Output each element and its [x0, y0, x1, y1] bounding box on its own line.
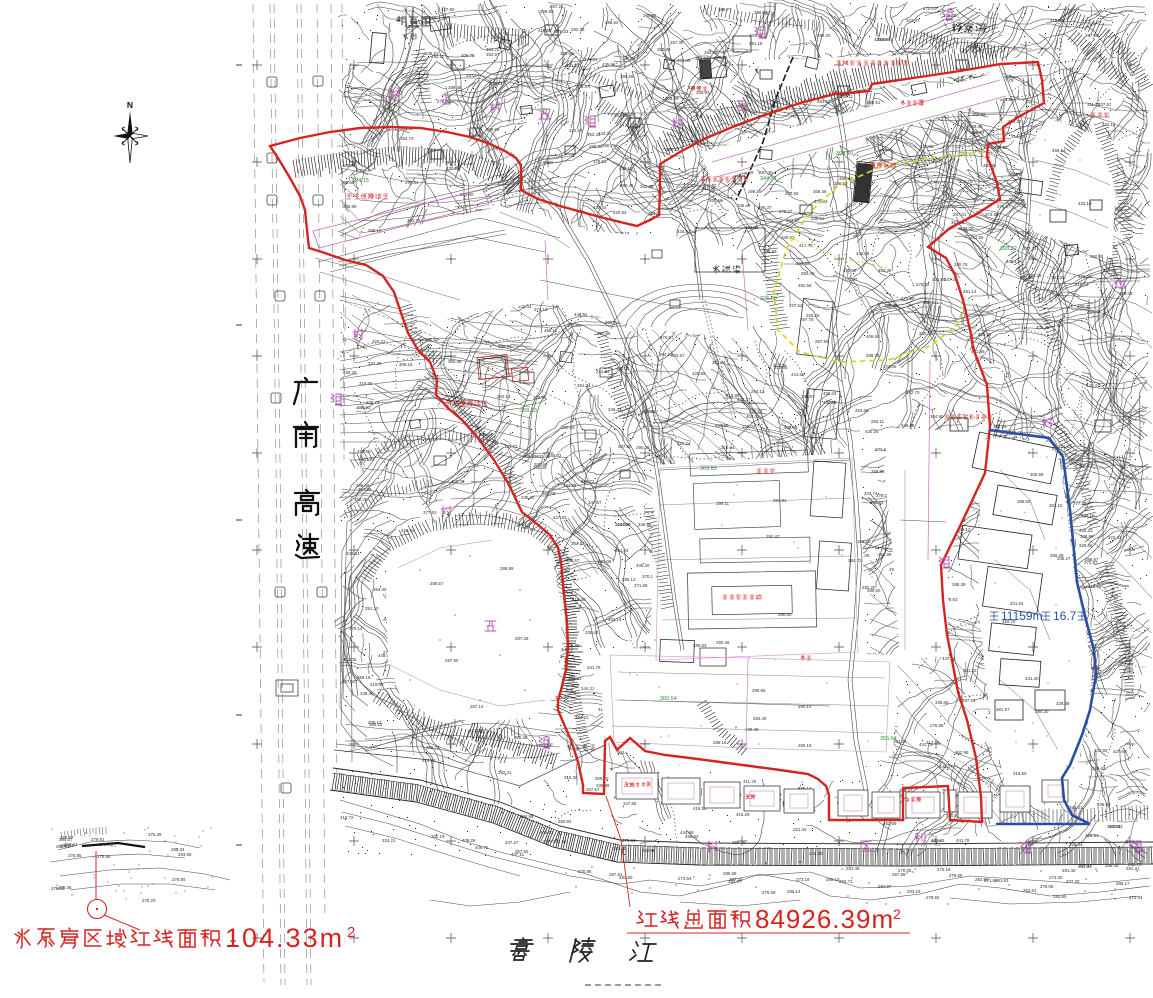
svg-text:329.03: 329.03 — [1119, 291, 1133, 296]
svg-text:283.85: 283.85 — [1053, 894, 1067, 899]
svg-text:316.60: 316.60 — [1013, 771, 1027, 776]
svg-text:335.56: 335.56 — [796, 261, 810, 266]
svg-text:278.26: 278.26 — [99, 842, 113, 847]
svg-text:408.82: 408.82 — [523, 454, 537, 459]
svg-text:341.30: 341.30 — [1025, 676, 1039, 681]
svg-text:427.90: 427.90 — [441, 7, 455, 12]
svg-text:441.76: 441.76 — [919, 742, 933, 747]
svg-text:380.29: 380.29 — [1028, 273, 1042, 278]
svg-text:323.37: 323.37 — [906, 18, 920, 23]
svg-text:379.91: 379.91 — [593, 159, 607, 164]
svg-text:322.41: 322.41 — [1108, 535, 1122, 540]
svg-text:273.00: 273.00 — [901, 296, 915, 301]
svg-text:286.50: 286.50 — [857, 539, 871, 544]
svg-text:288.89: 288.89 — [500, 566, 514, 571]
svg-text:347.67: 347.67 — [588, 500, 602, 505]
svg-text:349.51: 349.51 — [811, 216, 825, 221]
svg-text:373.92: 373.92 — [985, 212, 999, 217]
svg-text:432.11: 432.11 — [1102, 122, 1116, 127]
svg-text:391.40: 391.40 — [365, 606, 379, 611]
svg-text:351.04: 351.04 — [615, 548, 629, 553]
svg-text:276.28: 276.28 — [916, 282, 930, 287]
svg-text:419.90: 419.90 — [422, 758, 436, 763]
svg-text:374.47: 374.47 — [844, 277, 858, 282]
svg-text:447.52: 447.52 — [622, 56, 636, 61]
svg-text:352.89: 352.89 — [878, 552, 892, 557]
svg-text:363.36: 363.36 — [665, 96, 679, 101]
svg-text:427.83: 427.83 — [553, 515, 567, 520]
svg-text:384.19: 384.19 — [659, 352, 673, 357]
svg-text:459.11: 459.11 — [544, 328, 558, 333]
svg-text:287.70: 287.70 — [670, 40, 684, 45]
svg-text:335.42: 335.42 — [585, 630, 599, 635]
svg-text:441.62: 441.62 — [703, 183, 717, 188]
svg-text:309.16: 309.16 — [399, 362, 413, 367]
svg-text:309.20: 309.20 — [595, 776, 609, 781]
svg-text:277.17: 277.17 — [1079, 863, 1093, 868]
svg-text:297.01: 297.01 — [953, 212, 967, 217]
svg-text:274.54: 274.54 — [678, 876, 692, 881]
svg-text:344.21: 344.21 — [581, 686, 595, 691]
svg-text:411.78: 411.78 — [743, 779, 757, 784]
svg-text:344.61: 344.61 — [760, 176, 777, 182]
svg-text:2: 2 — [347, 924, 355, 941]
svg-text:279.92: 279.92 — [926, 895, 940, 900]
svg-text:304.57: 304.57 — [671, 353, 685, 358]
svg-text:362.83: 362.83 — [640, 184, 654, 189]
svg-text:369.63: 369.63 — [1092, 766, 1106, 771]
svg-text:441.78: 441.78 — [956, 838, 970, 843]
svg-text:270.18: 270.18 — [937, 867, 951, 872]
svg-text:391.24: 391.24 — [577, 383, 591, 388]
svg-text:379.14: 379.14 — [349, 626, 363, 631]
svg-text:403.16: 403.16 — [608, 617, 622, 622]
svg-text:398.92: 398.92 — [1000, 246, 1017, 252]
svg-text:373.01: 373.01 — [567, 323, 581, 328]
svg-text:379.61: 379.61 — [405, 180, 419, 185]
svg-text:360.76: 360.76 — [1008, 172, 1022, 177]
svg-text:276.69: 276.69 — [762, 890, 776, 895]
svg-text:308.93: 308.93 — [486, 127, 500, 132]
svg-text:298.65: 298.65 — [356, 483, 370, 488]
svg-text:362.93: 362.93 — [712, 360, 726, 365]
svg-text:310.55: 310.55 — [615, 522, 629, 527]
svg-text:290.14: 290.14 — [798, 704, 812, 709]
svg-text:401.80: 401.80 — [1094, 748, 1108, 753]
svg-text:280.83: 280.83 — [693, 643, 707, 648]
svg-text:282.55: 282.55 — [975, 877, 989, 882]
svg-text:305.89: 305.89 — [343, 204, 357, 209]
svg-text:283.08: 283.08 — [598, 559, 612, 564]
svg-text:455.28: 455.28 — [343, 370, 357, 375]
svg-text:287.80: 287.80 — [618, 444, 632, 449]
svg-text:299.11: 299.11 — [716, 501, 730, 506]
svg-text:272.86: 272.86 — [533, 395, 547, 400]
svg-text:310.66: 310.66 — [920, 144, 934, 149]
svg-text:310.94: 310.94 — [721, 445, 735, 450]
svg-text:282.61: 282.61 — [1023, 888, 1037, 893]
svg-text:282.71: 282.71 — [839, 879, 853, 884]
svg-text:399.16: 399.16 — [357, 675, 371, 680]
svg-text:345.27: 345.27 — [1057, 556, 1071, 561]
svg-text:446.72: 446.72 — [475, 845, 489, 850]
svg-text:286.10: 286.10 — [826, 877, 840, 882]
svg-text:453.78: 453.78 — [784, 425, 798, 430]
svg-text:290.46: 290.46 — [716, 640, 730, 645]
svg-text:277.30: 277.30 — [1066, 879, 1080, 884]
svg-text:287.40: 287.40 — [759, 170, 773, 175]
svg-text:432.00: 432.00 — [960, 226, 974, 231]
svg-text:278.06: 278.06 — [1040, 884, 1054, 889]
svg-text:289.20: 289.20 — [817, 33, 831, 38]
svg-text:295.12: 295.12 — [622, 577, 636, 582]
svg-text:339.68: 339.68 — [935, 700, 949, 705]
svg-text:422.44: 422.44 — [593, 205, 607, 210]
svg-text:381.54: 381.54 — [1051, 275, 1065, 280]
svg-text:288.57: 288.57 — [430, 581, 444, 586]
svg-text:346.66: 346.66 — [901, 423, 915, 428]
svg-text:359.88: 359.88 — [871, 469, 885, 474]
svg-text:277.46: 277.46 — [1073, 501, 1087, 506]
svg-text:305.24: 305.24 — [993, 424, 1007, 429]
svg-text:326.51: 326.51 — [1085, 833, 1099, 838]
svg-text:320.57: 320.57 — [569, 128, 583, 133]
svg-text:276.48: 276.48 — [1078, 274, 1092, 279]
svg-text:341.76: 341.76 — [563, 483, 577, 488]
svg-text:390.46: 390.46 — [620, 183, 634, 188]
svg-text:287.20: 287.20 — [729, 877, 743, 882]
svg-text:294.12: 294.12 — [751, 389, 765, 394]
svg-text:352.97: 352.97 — [486, 52, 500, 57]
svg-text:294.56: 294.56 — [798, 283, 812, 288]
svg-text:281.14: 281.14 — [963, 289, 977, 294]
svg-text:337.52: 337.52 — [789, 303, 803, 308]
svg-text:275.38: 275.38 — [148, 832, 162, 837]
svg-text:418.99: 418.99 — [1088, 584, 1102, 589]
svg-text:375.23: 375.23 — [555, 29, 569, 34]
svg-text:337.67: 337.67 — [1098, 102, 1112, 107]
svg-text:435.61: 435.61 — [425, 51, 439, 56]
svg-text:292.83: 292.83 — [558, 819, 572, 824]
svg-text:290.48: 290.48 — [745, 727, 759, 732]
svg-text:419.96: 419.96 — [1050, 18, 1064, 23]
svg-text:427.60: 427.60 — [1113, 749, 1127, 754]
svg-text:406.79: 406.79 — [461, 53, 475, 58]
svg-text:368.46: 368.46 — [813, 189, 827, 194]
svg-text:272.44: 272.44 — [1129, 895, 1143, 900]
svg-text:318.30: 318.30 — [564, 775, 578, 780]
svg-text:425.58: 425.58 — [978, 332, 992, 337]
svg-text:287.60: 287.60 — [445, 658, 459, 663]
svg-text:285.34: 285.34 — [1105, 863, 1119, 868]
svg-text:443.32: 443.32 — [598, 131, 612, 136]
svg-text:278.47: 278.47 — [576, 84, 590, 89]
svg-text:104.33m: 104.33m — [225, 923, 344, 953]
svg-text:388.72: 388.72 — [581, 479, 595, 484]
svg-text:417.78: 417.78 — [799, 243, 813, 248]
svg-text:392.09: 392.09 — [801, 271, 815, 276]
svg-text:278.07: 278.07 — [779, 209, 793, 214]
svg-text:304.22: 304.22 — [489, 81, 503, 86]
svg-text:341.75: 341.75 — [587, 665, 601, 670]
svg-text:326.60: 326.60 — [760, 296, 777, 302]
svg-text:281.46: 281.46 — [846, 866, 860, 871]
svg-text:283.62: 283.62 — [817, 99, 831, 104]
svg-text:330.48: 330.48 — [919, 331, 933, 336]
svg-text:369.38: 369.38 — [972, 112, 986, 117]
svg-text:363.58: 363.58 — [542, 491, 556, 496]
svg-text:346.91: 346.91 — [357, 405, 371, 410]
svg-text:353.58: 353.58 — [709, 198, 723, 203]
svg-text:278.69: 278.69 — [949, 873, 963, 878]
svg-text:380.66: 380.66 — [620, 74, 634, 79]
svg-text:286.59: 286.59 — [723, 871, 737, 876]
svg-text:430.25: 430.25 — [865, 429, 879, 434]
svg-text:297.78: 297.78 — [800, 317, 814, 322]
svg-text:290.15: 290.15 — [798, 743, 812, 748]
svg-text:2: 2 — [893, 906, 901, 922]
svg-text:357.55: 357.55 — [515, 849, 529, 854]
svg-text:328.66: 328.66 — [1079, 543, 1093, 548]
svg-text:410.44: 410.44 — [1103, 268, 1117, 273]
svg-text:358.36: 358.36 — [969, 124, 983, 129]
svg-text:364.95: 364.95 — [930, 414, 944, 419]
svg-text:408.92: 408.92 — [870, 500, 884, 505]
svg-text:287.65: 287.65 — [815, 339, 829, 344]
svg-text:283.95: 283.95 — [178, 852, 192, 857]
svg-text:287.29: 287.29 — [962, 698, 976, 703]
svg-text:347.55: 347.55 — [623, 801, 637, 806]
svg-text:283.19: 283.19 — [907, 889, 921, 894]
svg-text:367.29: 367.29 — [550, 4, 564, 9]
svg-text:289.86: 289.86 — [589, 144, 603, 149]
svg-text:382.18: 382.18 — [1081, 513, 1095, 518]
svg-text:450.81: 450.81 — [1090, 254, 1104, 259]
svg-text:390.78: 390.78 — [602, 143, 616, 148]
svg-text:84926.39m: 84926.39m — [755, 904, 894, 934]
svg-text:385.64: 385.64 — [971, 130, 985, 135]
svg-text:329.04: 329.04 — [742, 424, 756, 429]
svg-text:292.47: 292.47 — [766, 534, 780, 539]
svg-text:453.98: 453.98 — [715, 423, 729, 428]
svg-text:282.75: 282.75 — [1128, 862, 1142, 867]
svg-text:392.41: 392.41 — [498, 770, 512, 775]
svg-text:273.18: 273.18 — [796, 877, 810, 882]
svg-text:287.14: 287.14 — [470, 704, 484, 709]
svg-text:350.38: 350.38 — [657, 47, 671, 52]
svg-text:403.71: 403.71 — [616, 366, 630, 371]
svg-text:318.04: 318.04 — [1075, 282, 1089, 287]
svg-text:381.97: 381.97 — [996, 707, 1010, 712]
svg-text:405.20: 405.20 — [636, 563, 650, 568]
svg-text:384.23: 384.23 — [369, 722, 383, 727]
svg-text:459.13: 459.13 — [1052, 148, 1066, 153]
svg-text:368.33: 368.33 — [520, 408, 537, 414]
svg-text:280.78: 280.78 — [954, 262, 968, 267]
svg-text:296.37: 296.37 — [758, 205, 772, 210]
svg-text:347.27: 347.27 — [505, 840, 519, 845]
svg-text:287.88: 287.88 — [892, 872, 906, 877]
svg-text:279.85: 279.85 — [172, 877, 186, 882]
svg-text:281.40: 281.40 — [1062, 868, 1076, 873]
svg-text:354.74: 354.74 — [400, 136, 414, 141]
svg-text:342.70: 342.70 — [906, 390, 920, 395]
svg-text:344.55: 344.55 — [785, 191, 799, 196]
svg-text:304.87: 304.87 — [786, 218, 800, 223]
svg-text:335.20: 335.20 — [521, 495, 535, 500]
svg-text:288.52: 288.52 — [605, 20, 619, 25]
svg-text:355.64: 355.64 — [880, 736, 897, 742]
svg-text:321.32: 321.32 — [963, 668, 977, 673]
svg-text:408.29: 408.29 — [462, 838, 476, 843]
svg-text:338.89: 338.89 — [1080, 534, 1094, 539]
svg-text:276.85: 276.85 — [68, 853, 82, 858]
svg-text:287.38: 287.38 — [515, 636, 529, 641]
svg-text:352.75: 352.75 — [354, 497, 368, 502]
svg-text:315.45: 315.45 — [370, 682, 384, 687]
svg-text:292.11: 292.11 — [871, 419, 885, 424]
svg-text:283.64: 283.64 — [64, 842, 78, 847]
svg-text:316.46: 316.46 — [943, 13, 957, 18]
svg-text:270.96: 270.96 — [578, 869, 592, 874]
svg-text:428.59: 428.59 — [692, 371, 706, 376]
svg-text:289.48: 289.48 — [448, 85, 462, 90]
svg-text:287.05: 287.05 — [1085, 33, 1099, 38]
svg-text:441.12: 441.12 — [566, 63, 580, 68]
svg-text:16.7: 16.7 — [1053, 609, 1077, 623]
svg-text:452.56: 452.56 — [970, 235, 984, 240]
svg-text:429.50: 429.50 — [994, 145, 1008, 150]
svg-text:413.05: 413.05 — [343, 657, 357, 662]
svg-text:281.14: 281.14 — [787, 889, 801, 894]
svg-text:442.55: 442.55 — [843, 268, 857, 273]
svg-text:353.55: 353.55 — [855, 408, 869, 413]
svg-text:334.84: 334.84 — [642, 848, 656, 853]
svg-text:314.79: 314.79 — [1011, 134, 1025, 139]
svg-text:372.89: 372.89 — [677, 58, 691, 63]
svg-text:282.20: 282.20 — [862, 585, 876, 590]
svg-text:321.44: 321.44 — [793, 827, 807, 832]
svg-text:314.34: 314.34 — [596, 369, 610, 374]
svg-text:367.40: 367.40 — [405, 24, 419, 29]
svg-text:287.27: 287.27 — [466, 73, 480, 78]
svg-text:276.98: 276.98 — [930, 723, 944, 728]
svg-text:455.62: 455.62 — [685, 834, 699, 839]
svg-text:409.04: 409.04 — [823, 391, 837, 396]
svg-text:275.56: 275.56 — [97, 854, 111, 859]
svg-text:371.68: 371.68 — [634, 583, 648, 588]
svg-text:290.00: 290.00 — [778, 612, 792, 617]
svg-text:335.50: 335.50 — [1097, 802, 1111, 807]
svg-text:389.46: 389.46 — [884, 303, 898, 308]
svg-text:302.69: 302.69 — [1030, 472, 1044, 477]
svg-text:322.79: 322.79 — [959, 179, 973, 184]
svg-text:278.61: 278.61 — [584, 57, 598, 62]
svg-text:346.47: 346.47 — [608, 407, 622, 412]
svg-text:11159m: 11159m — [1001, 609, 1043, 623]
svg-text:420.93: 420.93 — [613, 210, 627, 215]
svg-text:270.07: 270.07 — [923, 6, 937, 11]
svg-text:300.54: 300.54 — [660, 696, 677, 702]
svg-text:415.72: 415.72 — [340, 815, 354, 820]
svg-text:299.66: 299.66 — [752, 688, 766, 693]
svg-text:279.81: 279.81 — [91, 837, 105, 842]
svg-text:356.22: 356.22 — [426, 745, 440, 750]
svg-text:281.97: 281.97 — [60, 835, 74, 840]
svg-text:440.41: 440.41 — [1086, 383, 1100, 388]
svg-text:285.39: 285.39 — [952, 582, 966, 587]
svg-text:441.50: 441.50 — [791, 372, 805, 377]
svg-text:303.40: 303.40 — [836, 151, 853, 157]
svg-text:452.69: 452.69 — [883, 821, 897, 826]
svg-text:410.65: 410.65 — [774, 365, 788, 370]
svg-text:389.00: 389.00 — [1017, 499, 1031, 504]
svg-text:327.85: 327.85 — [931, 838, 945, 843]
svg-text:292.78: 292.78 — [571, 27, 585, 32]
svg-text:334.83: 334.83 — [677, 229, 691, 234]
svg-text:298.50: 298.50 — [748, 189, 762, 194]
svg-text:377.63: 377.63 — [423, 510, 437, 515]
svg-text:284.97: 284.97 — [878, 884, 892, 889]
svg-text:354.14: 354.14 — [923, 300, 937, 305]
svg-text:320.33: 320.33 — [1109, 824, 1123, 829]
svg-text:340.06: 340.06 — [856, 251, 870, 256]
svg-text:443.47: 443.47 — [939, 764, 953, 769]
svg-text:388.78: 388.78 — [866, 353, 880, 358]
svg-text:447.18: 447.18 — [619, 166, 633, 171]
svg-text:454.39: 454.39 — [878, 268, 892, 273]
svg-text:286.17: 286.17 — [1116, 881, 1130, 886]
svg-text:275.36: 275.36 — [58, 885, 72, 890]
svg-text:284.40: 284.40 — [753, 716, 767, 721]
svg-text:419.39: 419.39 — [572, 597, 586, 602]
svg-text:350.19: 350.19 — [431, 834, 445, 839]
svg-text:362.98: 362.98 — [955, 750, 969, 755]
svg-text:286.16: 286.16 — [713, 740, 727, 745]
svg-text:435.52: 435.52 — [602, 62, 616, 67]
svg-text:436.75: 436.75 — [1036, 325, 1050, 330]
svg-text:416.29: 416.29 — [736, 812, 750, 817]
svg-text:349.87: 349.87 — [801, 394, 815, 399]
svg-text:275.20: 275.20 — [142, 898, 156, 903]
svg-text:349.34: 349.34 — [346, 551, 360, 556]
svg-text:447.40: 447.40 — [942, 656, 956, 661]
svg-text:290.02: 290.02 — [636, 445, 650, 450]
svg-text:423.55: 423.55 — [874, 37, 888, 42]
svg-text:363.53: 363.53 — [700, 466, 717, 472]
svg-text:274.00: 274.00 — [1049, 875, 1063, 880]
svg-text:321.64: 321.64 — [1010, 601, 1024, 606]
svg-text:324.21: 324.21 — [382, 838, 396, 843]
svg-text:375.67: 375.67 — [997, 204, 1011, 209]
svg-text:324.15: 324.15 — [352, 178, 369, 184]
svg-text:328.08: 328.08 — [1056, 701, 1070, 706]
svg-text:N: N — [127, 100, 133, 110]
